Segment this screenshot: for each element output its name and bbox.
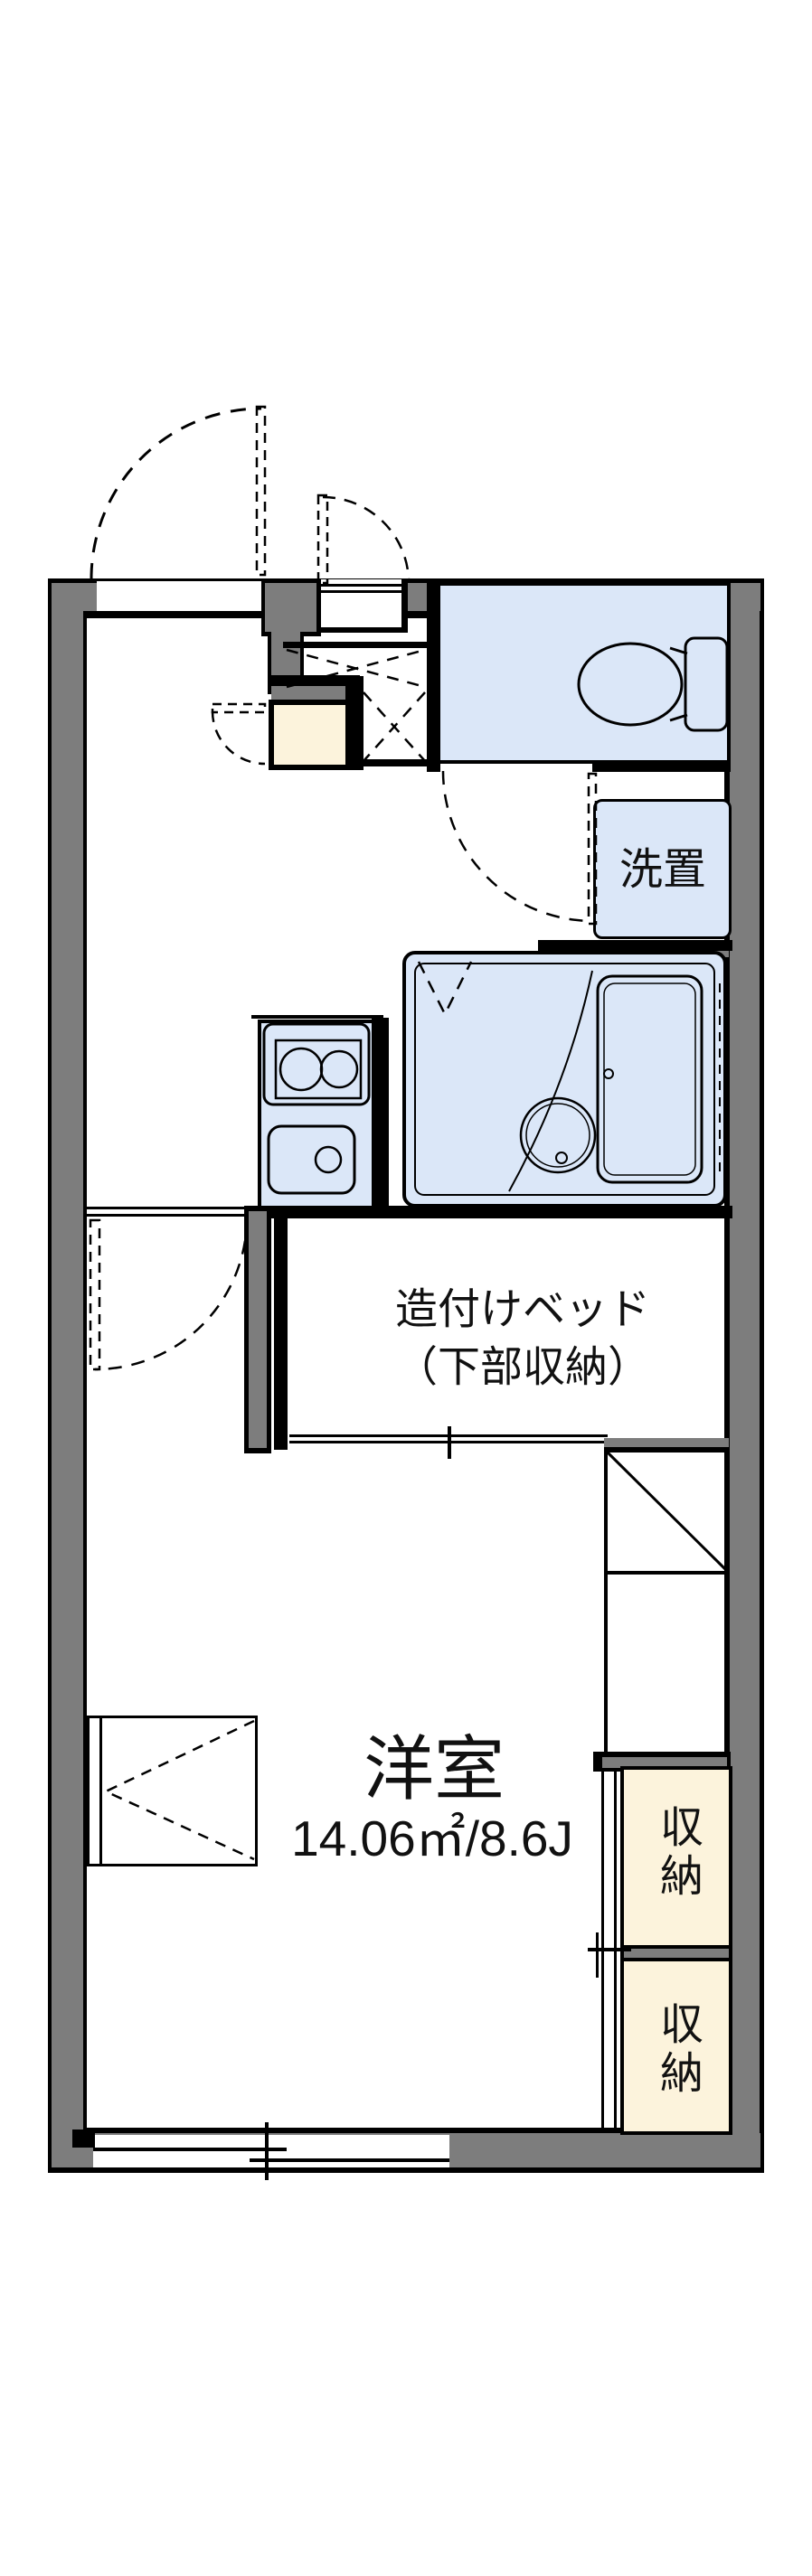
entrance-door-arc (91, 409, 261, 578)
bedroom-door-arc (95, 1217, 247, 1369)
washer-label: 洗置 (619, 833, 706, 897)
bathroom-interior (415, 964, 714, 1195)
bath-stool-drain (556, 1152, 567, 1163)
toilet-door-leaf (589, 774, 596, 924)
bathtub (598, 976, 702, 1182)
entry-x-marks (287, 650, 425, 761)
bathroom-inner-wall (415, 964, 714, 1195)
bath-stool-inner (526, 1104, 590, 1167)
bedroom-door-leaf (90, 1220, 99, 1369)
burner-right (321, 1051, 357, 1087)
room-area: 14.06㎡/8.6J (291, 1798, 573, 1870)
floor-plan: 洗置 造付けベッド （下部収納） 洋室 14.06㎡/8.6J 収納 収納 (0, 0, 812, 2576)
entrance-door-leaf (257, 407, 265, 575)
sink-drain (316, 1147, 341, 1172)
storage-lower-label: 収納 (645, 2001, 708, 2099)
storage-upper-label: 収納 (645, 1804, 708, 1902)
bed-label-line2: （下部収納） (395, 1332, 650, 1395)
second-door-leaf (318, 495, 327, 583)
second-door-arc (323, 497, 409, 583)
stove-inner (276, 1040, 361, 1098)
bathtub-inner (604, 983, 695, 1175)
fridge-nook-diagonal (608, 1453, 725, 1569)
toilet-door-arc (443, 771, 592, 921)
bed-label-line1: 造付けベッド (395, 1274, 650, 1337)
burner-left (280, 1048, 322, 1090)
shoe-cabinet-door-leaf (212, 704, 265, 712)
shoe-cabinet-door-arc (212, 711, 265, 764)
kitchen-appliances (264, 1024, 369, 1193)
bathtub-drain (604, 1069, 613, 1078)
desk-fold-marks (106, 1721, 254, 1859)
bathroom-folding-door (419, 962, 471, 1014)
toilet-fixture (579, 638, 727, 730)
